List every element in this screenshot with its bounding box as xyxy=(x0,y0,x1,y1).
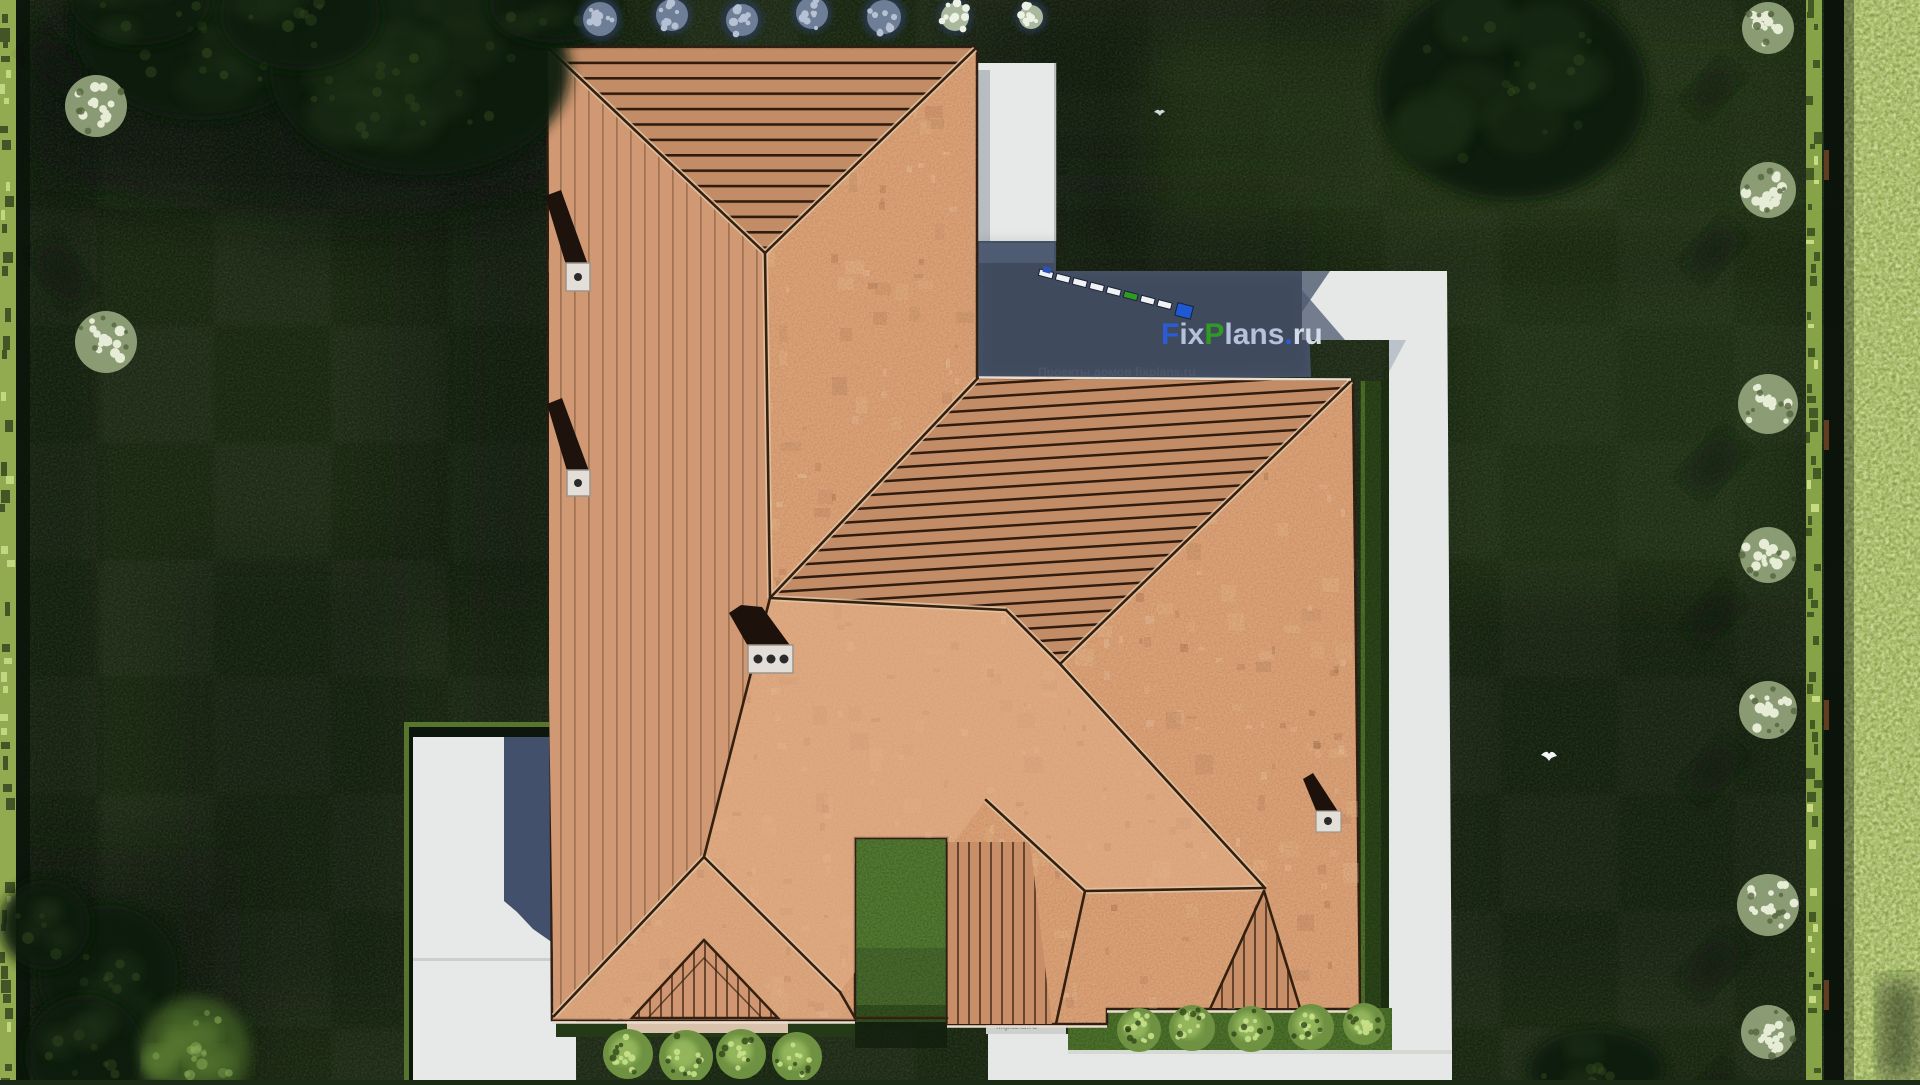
svg-text:Проекты домов fixplans.ru: Проекты домов fixplans.ru xyxy=(1038,365,1196,379)
svg-text:FixPlans.ru: FixPlans.ru xyxy=(1161,318,1323,351)
